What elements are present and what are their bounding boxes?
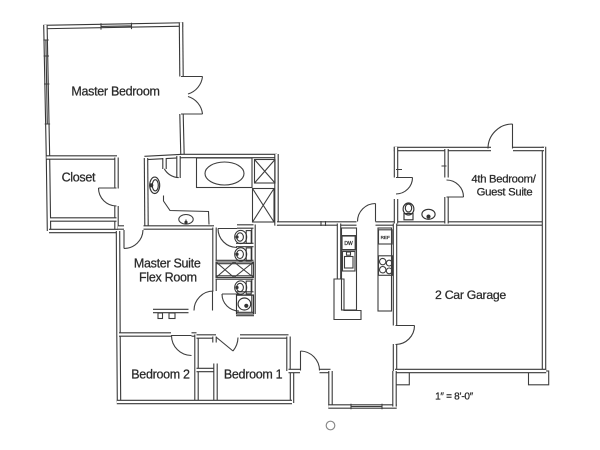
- svg-text:Bedroom 2: Bedroom 2: [131, 367, 190, 381]
- svg-text:REF: REF: [381, 235, 390, 240]
- svg-text:4th Bedroom/: 4th Bedroom/: [471, 174, 536, 186]
- svg-text:Bedroom 1: Bedroom 1: [224, 367, 283, 381]
- svg-text:Guest Suite: Guest Suite: [477, 186, 533, 198]
- svg-text:DW: DW: [344, 241, 353, 247]
- svg-text:Master Bedroom: Master Bedroom: [71, 84, 159, 98]
- svg-text:Closet: Closet: [62, 170, 96, 184]
- svg-text:Flex Room: Flex Room: [139, 271, 197, 285]
- svg-text:1″ = 8’-0″: 1″ = 8’-0″: [435, 392, 473, 403]
- svg-text:2 Car Garage: 2 Car Garage: [435, 288, 506, 302]
- svg-text:Master Suite: Master Suite: [134, 256, 201, 270]
